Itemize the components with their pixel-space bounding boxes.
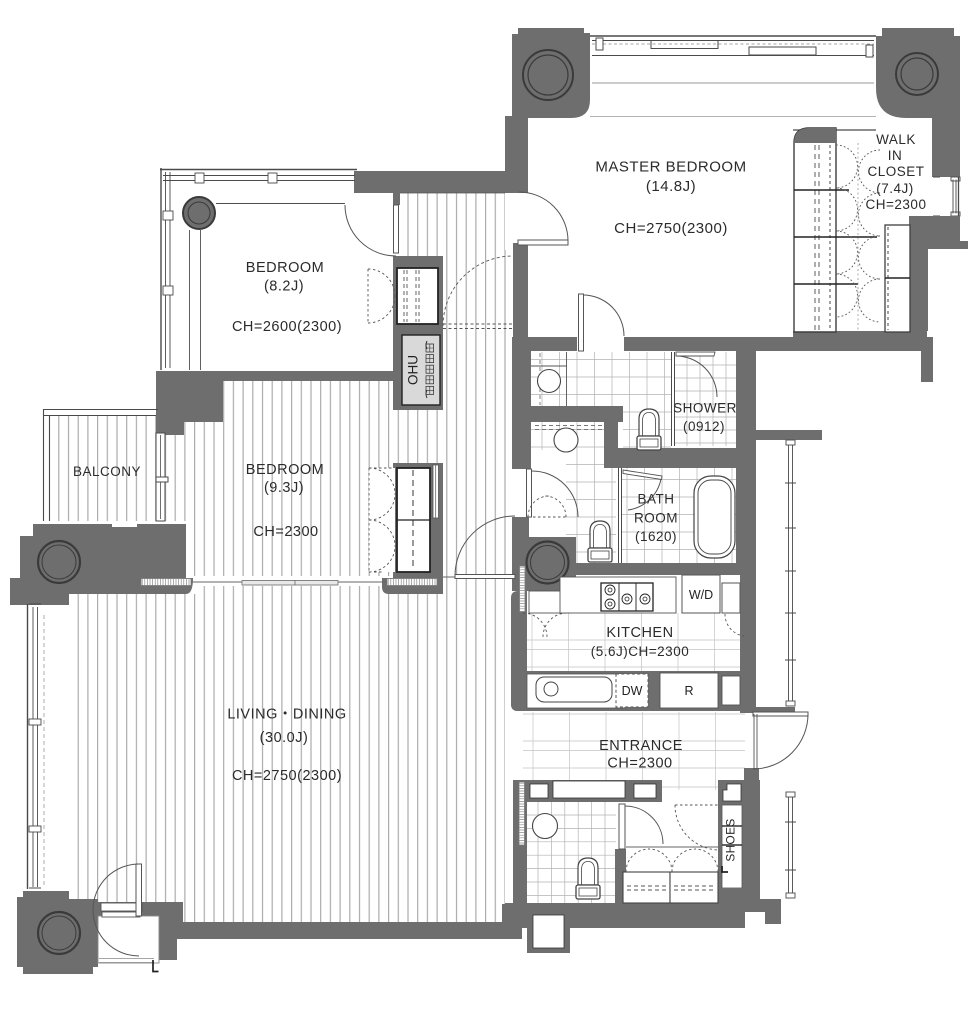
svg-text:BEDROOM: BEDROOM [246,260,324,276]
svg-text:CH=2750(2300): CH=2750(2300) [232,768,342,784]
svg-text:OHU: OHU [406,355,421,385]
svg-text:CLOSET: CLOSET [867,164,924,179]
svg-text:(1620): (1620) [635,529,677,544]
svg-text:(8.2J): (8.2J) [264,279,304,295]
svg-text:(5.6J)CH=2300: (5.6J)CH=2300 [591,644,689,659]
svg-text:ENTRANCE: ENTRANCE [599,738,683,754]
svg-text:IN: IN [888,148,903,163]
svg-text:WALK: WALK [876,132,916,147]
svg-text:R: R [684,684,693,698]
svg-text:(14.8J): (14.8J) [646,178,696,195]
svg-text:KITCHEN: KITCHEN [606,625,673,641]
svg-text:CH=2300: CH=2300 [607,756,672,772]
svg-text:(9.3J): (9.3J) [264,480,304,496]
svg-text:BALCONY: BALCONY [73,464,141,479]
svg-text:BEDROOM: BEDROOM [246,462,324,478]
svg-text:SHOES: SHOES [724,818,738,861]
svg-text:DW: DW [622,684,643,698]
svg-text:MASTER BEDROOM: MASTER BEDROOM [595,159,746,176]
svg-text:ROOM: ROOM [634,511,678,526]
svg-text:BATH: BATH [637,492,674,507]
svg-text:(0912): (0912) [683,419,725,434]
svg-text:SHOWER: SHOWER [673,401,737,416]
svg-text:CH=2600(2300): CH=2600(2300) [232,319,342,335]
svg-text:CH=2300: CH=2300 [253,524,318,540]
svg-text:(7.4J): (7.4J) [876,181,914,196]
svg-text:CH=2300: CH=2300 [866,197,927,212]
svg-text:(30.0J): (30.0J) [260,730,309,746]
svg-text:CH=2750(2300): CH=2750(2300) [614,220,728,237]
svg-text:W/D: W/D [689,588,713,602]
svg-text:LIVING・DINING: LIVING・DINING [227,707,346,723]
